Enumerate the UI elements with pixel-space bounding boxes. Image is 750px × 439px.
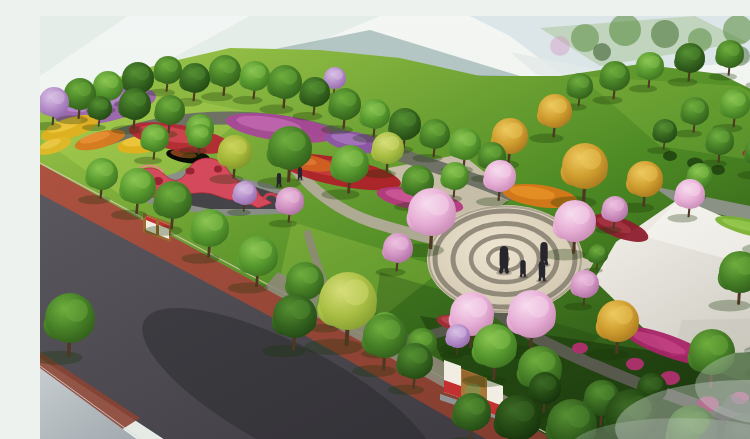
tree-canopy-highlight <box>491 330 511 350</box>
tree-shadow <box>233 96 263 104</box>
tree-canopy-highlight <box>507 123 523 139</box>
rendering-canvas <box>40 16 750 439</box>
tree-canopy-highlight <box>468 298 488 318</box>
person-head <box>520 260 525 265</box>
tree-shadow <box>352 365 396 377</box>
tree-shadow <box>56 115 88 124</box>
tree-shadow <box>674 130 702 138</box>
tree-canopy-highlight <box>708 335 729 356</box>
tree-shadow <box>269 220 297 228</box>
tree-canopy-highlight <box>135 66 149 80</box>
person-head <box>539 261 545 267</box>
tree-canopy-highlight <box>647 56 660 69</box>
tree-shadow <box>305 339 363 355</box>
tree-shadow <box>182 253 220 264</box>
tree-shadow <box>709 73 737 81</box>
tree-shadow <box>413 154 443 162</box>
tree-shadow <box>293 112 323 120</box>
tree-canopy-highlight <box>51 91 65 105</box>
tree-shadow <box>210 175 244 185</box>
tree-canopy-highlight <box>254 241 272 259</box>
person-shadow <box>536 279 547 282</box>
tree-canopy-highlight <box>372 103 386 117</box>
tree-canopy-highlight <box>402 112 416 126</box>
tree-canopy-highlight <box>135 173 151 189</box>
tree-canopy-highlight <box>243 184 254 195</box>
tree-canopy-highlight <box>132 92 146 106</box>
tree-canopy-highlight <box>452 166 465 179</box>
tree-shadow <box>530 134 564 144</box>
tree-canopy-highlight <box>578 76 590 88</box>
tree-canopy-highlight <box>514 401 535 422</box>
tree-canopy-highlight <box>252 65 266 79</box>
tree-shadow <box>440 352 464 359</box>
person-head <box>277 173 281 177</box>
tree-canopy-highlight <box>198 127 209 138</box>
tree-shadow <box>476 197 508 206</box>
tree-canopy-highlight <box>342 92 356 106</box>
tree-canopy-highlight <box>419 332 433 346</box>
tree-canopy-highlight <box>527 296 549 318</box>
tree-canopy-highlight <box>462 132 476 146</box>
tree-canopy-highlight <box>663 122 674 133</box>
tree-canopy-highlight <box>412 348 428 364</box>
tree-shadow <box>564 303 592 311</box>
tree-canopy-highlight <box>581 149 602 170</box>
tree-canopy-highlight <box>105 75 119 89</box>
tree-canopy-highlight <box>346 150 363 167</box>
tree-shadow <box>647 147 671 154</box>
tree-canopy-highlight <box>167 99 181 113</box>
tree-canopy-highlight <box>687 183 701 197</box>
tree-canopy-highlight <box>385 136 399 150</box>
tree-canopy-highlight <box>717 131 730 144</box>
tree-canopy-highlight <box>287 191 300 204</box>
tree-shadow <box>596 227 622 234</box>
tree-canopy-highlight <box>286 132 306 152</box>
tree-shadow <box>462 375 506 387</box>
tree-canopy-highlight <box>732 93 746 107</box>
tree-canopy-highlight <box>65 299 88 322</box>
tree-canopy-highlight <box>427 194 449 216</box>
tree-canopy-highlight <box>395 237 409 251</box>
tree-shadow <box>668 214 698 222</box>
tree-shadow <box>260 105 294 115</box>
tree-canopy-highlight <box>291 300 311 320</box>
tree-shadow <box>262 345 306 357</box>
faded-tree <box>593 43 611 61</box>
tree-shadow <box>145 225 183 236</box>
person-head <box>500 246 508 254</box>
tree-shadow <box>593 96 623 104</box>
tree-canopy-highlight <box>567 405 590 428</box>
person-shadow <box>275 186 283 188</box>
flowering-shrub <box>626 358 644 371</box>
tree-canopy-highlight <box>333 70 343 80</box>
person-head <box>298 167 302 171</box>
tree-canopy-highlight <box>282 69 297 84</box>
tree-shadow <box>82 124 106 131</box>
tree-shadow <box>134 157 162 165</box>
tree-shadow <box>182 152 206 159</box>
tree-canopy-highlight <box>77 82 91 96</box>
tree-shadow <box>78 195 110 204</box>
tree-canopy-highlight <box>301 267 318 284</box>
tree-canopy-highlight <box>222 59 236 73</box>
tree-canopy-highlight <box>727 44 740 57</box>
tree-shadow <box>321 125 353 134</box>
tree-canopy-highlight <box>497 164 511 178</box>
tree-canopy-highlight <box>206 214 223 231</box>
person-head <box>540 242 547 249</box>
person-shadow <box>496 271 512 276</box>
tree-canopy-highlight <box>582 274 595 287</box>
tree-canopy-highlight <box>571 205 590 224</box>
tree-canopy-highlight <box>456 327 467 338</box>
park-aerial-rendering: Aerial 3D landscape-architecture renderi… <box>40 16 750 439</box>
tree-shadow <box>201 92 233 101</box>
tree-shadow <box>544 249 586 261</box>
tree-shadow <box>629 85 657 93</box>
tree-canopy-highlight <box>642 166 658 182</box>
tree-canopy-highlight <box>596 247 605 256</box>
tree-canopy-highlight <box>536 352 556 372</box>
tree-canopy-highlight <box>232 139 247 154</box>
person-shadow <box>296 179 303 181</box>
tree-shadow <box>364 169 396 178</box>
tree-canopy-highlight <box>312 81 326 95</box>
tree-shadow <box>322 189 360 200</box>
tree-shadow <box>388 385 424 395</box>
tree-canopy-highlight <box>432 123 446 137</box>
faded-tree <box>550 36 570 56</box>
person-shadow <box>518 276 528 279</box>
tree-canopy-highlight <box>468 398 485 415</box>
tree-canopy-highlight <box>613 199 625 211</box>
tree-canopy-highlight <box>98 99 109 110</box>
tree-canopy-highlight <box>612 65 626 79</box>
tree-shadow <box>668 78 698 86</box>
faded-tree <box>651 20 679 48</box>
tree-shadow <box>111 210 147 220</box>
tree-canopy-highlight <box>165 60 178 73</box>
tree-canopy-highlight <box>415 169 429 183</box>
tree-canopy-highlight <box>698 166 710 178</box>
tree-canopy-highlight <box>342 279 368 305</box>
tree-canopy-highlight <box>99 162 113 176</box>
tree-canopy-highlight <box>687 47 701 61</box>
tree-shadow <box>587 349 629 361</box>
tree-canopy-highlight <box>552 98 567 113</box>
tree-canopy-highlight <box>152 128 165 141</box>
tree-canopy-highlight <box>542 376 556 390</box>
tree-shadow <box>228 282 268 293</box>
tree-canopy-highlight <box>614 305 633 324</box>
tree-canopy-highlight <box>169 186 186 203</box>
tree-canopy-highlight <box>489 146 502 159</box>
tree-shadow <box>376 268 406 276</box>
tree-canopy-highlight <box>381 320 401 340</box>
flowering-shrub <box>572 342 588 353</box>
play-sculpture-hole <box>186 168 195 175</box>
tree-shadow <box>111 125 143 134</box>
tree-canopy-highlight <box>649 377 663 391</box>
play-sculpture-hole <box>214 166 222 173</box>
tree-shadow <box>709 300 750 312</box>
tree-shadow <box>227 209 251 216</box>
tree-canopy-highlight <box>692 101 705 114</box>
tree-canopy-highlight <box>192 67 206 81</box>
